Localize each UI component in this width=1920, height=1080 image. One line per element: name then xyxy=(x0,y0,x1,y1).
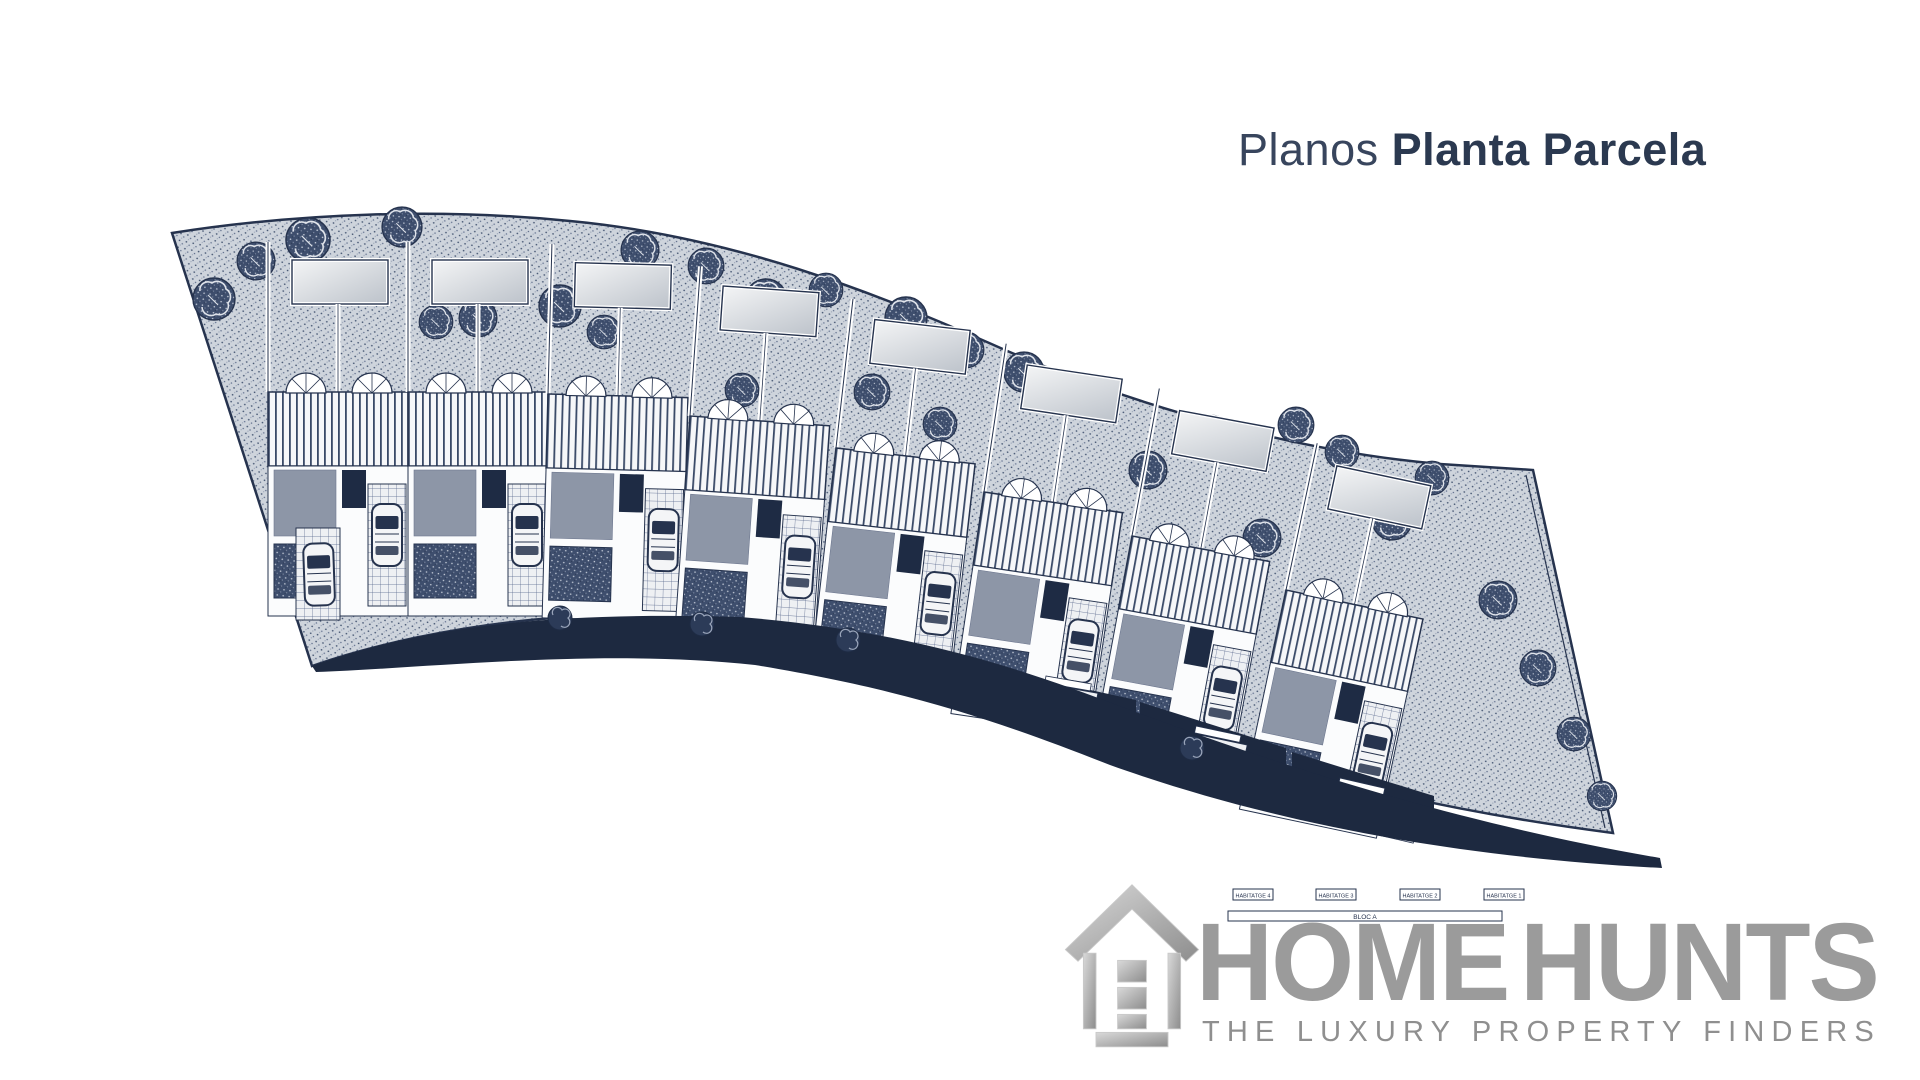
unit-label: HABITATGE 1 xyxy=(1487,894,1522,900)
tree-icon xyxy=(854,374,890,410)
tree-icon xyxy=(419,305,453,339)
tree-icon xyxy=(1557,717,1591,751)
homehunts-house-icon xyxy=(1060,874,1204,1054)
tree-icon xyxy=(688,248,724,284)
brand-wordmark: HOMEHUNTS xyxy=(1196,908,1878,1018)
unit-label: HABITATGE 3 xyxy=(1319,894,1354,900)
brand-hunts: HUNTS xyxy=(1520,901,1878,1024)
bush-icon xyxy=(836,628,860,652)
unit-label: HABITATGE 4 xyxy=(1236,894,1271,900)
tree-icon xyxy=(1278,407,1314,443)
brand-home: HOME xyxy=(1196,901,1508,1024)
tree-icon xyxy=(193,278,235,320)
tree-icon xyxy=(286,218,330,262)
tree-icon xyxy=(382,207,422,247)
bush-icon xyxy=(548,606,572,630)
page: Planos Planta Parcela xyxy=(0,0,1920,1080)
bush-icon xyxy=(690,612,714,636)
brand-tagline: THE LUXURY PROPERTY FINDERS xyxy=(1202,1016,1881,1049)
car-icon xyxy=(303,543,335,606)
tree-icon xyxy=(1479,581,1517,619)
tree-icon xyxy=(923,407,957,441)
tree-icon xyxy=(1587,781,1616,810)
bush-icon xyxy=(1180,736,1204,760)
unit-label: HABITATGE 2 xyxy=(1403,894,1438,900)
tree-icon xyxy=(1325,435,1359,469)
tree-icon xyxy=(1520,650,1556,686)
tree-icon xyxy=(587,315,621,349)
